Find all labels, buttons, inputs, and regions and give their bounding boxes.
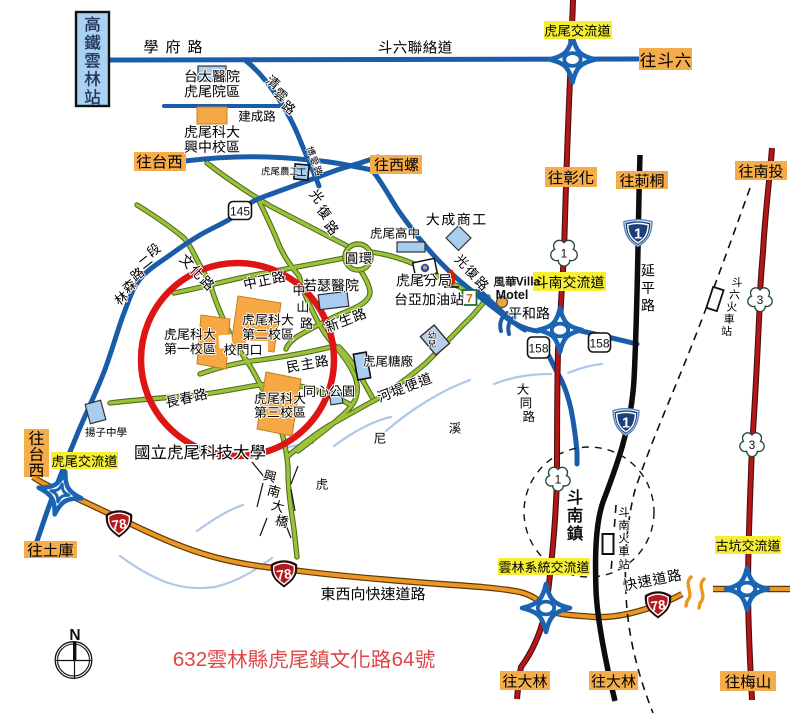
svg-text:64: 64 (392, 648, 415, 671)
svg-text:1: 1 (622, 416, 630, 432)
svg-text:145: 145 (230, 205, 250, 219)
svg-text:3: 3 (749, 438, 756, 452)
svg-text:1: 1 (561, 247, 568, 261)
svg-text:N: N (69, 627, 80, 644)
svg-text:158: 158 (528, 342, 548, 356)
svg-text:Motel: Motel (496, 288, 529, 302)
svg-text:78: 78 (650, 597, 667, 614)
svg-text:7: 7 (466, 292, 473, 306)
svg-text:158: 158 (589, 337, 609, 351)
svg-text:78: 78 (111, 516, 128, 533)
svg-text:1: 1 (555, 472, 562, 486)
svg-text:1: 1 (634, 227, 642, 243)
svg-text:632: 632 (173, 648, 207, 671)
svg-text:Villa: Villa (516, 275, 541, 289)
svg-text:78: 78 (276, 566, 293, 583)
svg-text:3: 3 (757, 293, 764, 307)
